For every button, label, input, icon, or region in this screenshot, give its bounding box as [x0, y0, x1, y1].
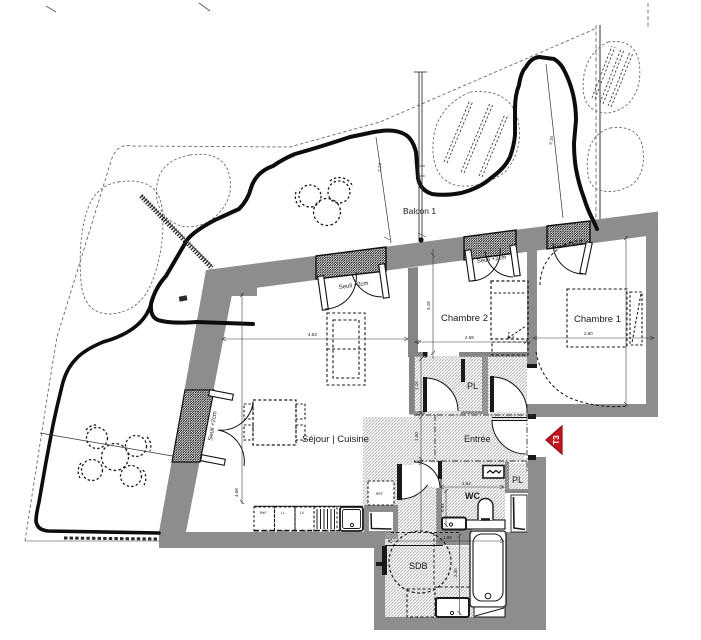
- svg-text:Chambre 2: Chambre 2: [441, 313, 488, 324]
- svg-text:REF: REF: [376, 492, 383, 496]
- svg-text:RéF: RéF: [260, 511, 267, 515]
- svg-text:1.16: 1.16: [414, 381, 419, 390]
- svg-text:2.69: 2.69: [465, 335, 474, 340]
- svg-text:Chambre 1: Chambre 1: [574, 314, 621, 325]
- svg-text:1.64: 1.64: [462, 481, 471, 486]
- svg-text:Entrée: Entrée: [464, 434, 491, 444]
- svg-text:2.80: 2.80: [584, 331, 593, 336]
- svg-text:PL: PL: [467, 381, 478, 391]
- svg-text:1.50: 1.50: [414, 432, 419, 441]
- svg-text:4.53: 4.53: [308, 332, 317, 337]
- svg-text:WC: WC: [465, 491, 480, 501]
- svg-text:1.85: 1.85: [443, 535, 452, 540]
- svg-text:Séjour | Cuisine: Séjour | Cuisine: [302, 434, 369, 445]
- svg-text:4.68: 4.68: [234, 488, 239, 497]
- svg-text:2.74: 2.74: [377, 162, 383, 172]
- svg-text:T3: T3: [552, 435, 561, 445]
- svg-text:0.94: 0.94: [440, 503, 445, 512]
- svg-text:LV: LV: [300, 511, 305, 515]
- svg-text:Balcon 1: Balcon 1: [403, 206, 436, 216]
- svg-text:SDB: SDB: [409, 561, 428, 571]
- svg-text:2.35: 2.35: [453, 568, 458, 577]
- svg-text:PL: PL: [512, 475, 523, 485]
- svg-text:LL: LL: [281, 511, 285, 515]
- svg-text:3.18: 3.18: [426, 301, 431, 310]
